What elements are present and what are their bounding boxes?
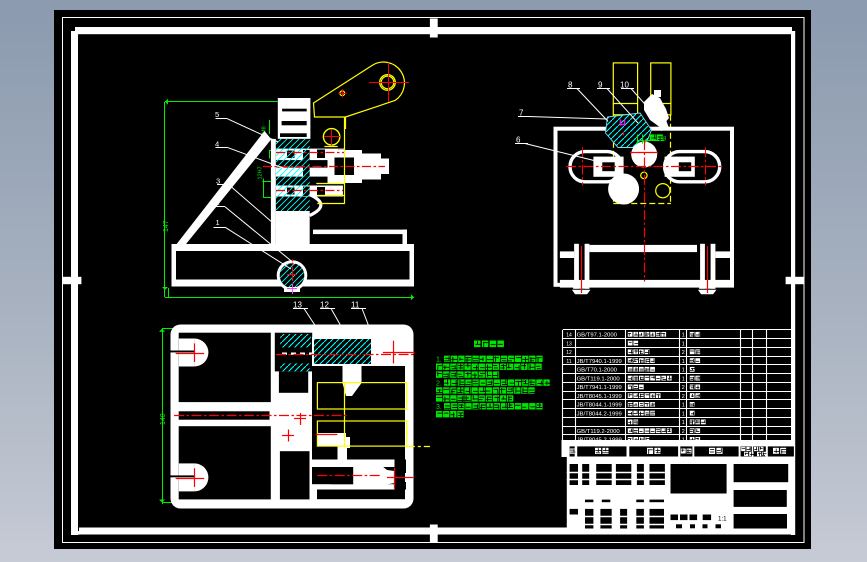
svg-text:JB/T7940.1-1999: JB/T7940.1-1999 [577, 359, 622, 365]
svg-text:JB/T8044.1-1999: JB/T8044.1-1999 [577, 403, 622, 409]
svg-text:147: 147 [163, 220, 170, 232]
svg-text:JB/T8044.2-1999: JB/T8044.2-1999 [577, 411, 622, 417]
svg-text:GB/T97.1-2000: GB/T97.1-2000 [577, 333, 618, 339]
svg-text:1: 1 [682, 333, 685, 339]
svg-text:2: 2 [216, 198, 220, 207]
svg-text:13: 13 [566, 341, 572, 347]
svg-text:1:1: 1:1 [718, 516, 727, 523]
svg-text:140: 140 [160, 413, 167, 425]
svg-text:1: 1 [682, 376, 685, 382]
svg-text:GB/T70.1-2000: GB/T70.1-2000 [577, 368, 618, 374]
svg-text:14: 14 [566, 333, 572, 339]
svg-text:JB/T8045.1-1999: JB/T8045.1-1999 [577, 394, 622, 400]
svg-text:1: 1 [682, 341, 685, 347]
svg-text:1: 1 [682, 411, 685, 417]
svg-text:3.: 3. [436, 404, 442, 411]
svg-text:1: 1 [682, 359, 685, 365]
svg-text:1.: 1. [436, 357, 442, 364]
svg-text:5: 5 [215, 110, 219, 119]
svg-text:12H7: 12H7 [258, 166, 264, 179]
svg-text:GB/T119.2-2000: GB/T119.2-2000 [577, 429, 621, 435]
svg-text:2: 2 [682, 385, 685, 391]
svg-text:1: 1 [682, 403, 685, 409]
svg-text:1: 1 [682, 420, 685, 426]
svg-text:2: 2 [682, 429, 685, 435]
svg-text:12: 12 [566, 350, 572, 356]
svg-text:1: 1 [216, 218, 220, 227]
svg-text:2: 2 [682, 350, 685, 356]
svg-text:GB/T119.1-2000: GB/T119.1-2000 [577, 376, 621, 382]
svg-text:1: 1 [682, 368, 685, 374]
svg-text:2.: 2. [436, 380, 442, 387]
svg-text:JB/T7941.1-1999: JB/T7941.1-1999 [577, 385, 622, 391]
svg-text:2: 2 [682, 394, 685, 400]
svg-text:11: 11 [566, 359, 571, 365]
